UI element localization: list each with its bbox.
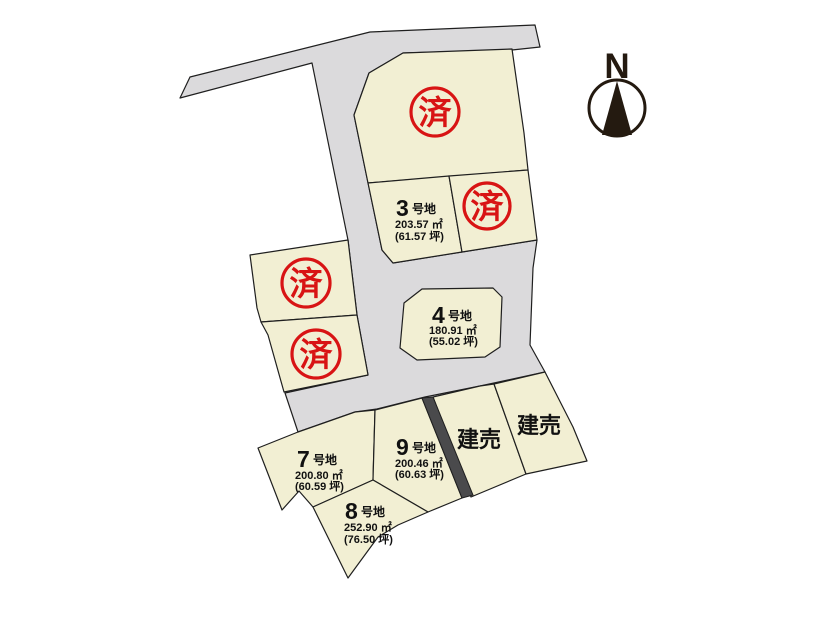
lot-4-label: 4 号地 180.91 ㎡ (55.02 坪) bbox=[429, 302, 478, 348]
lot-3-number: 3 bbox=[396, 195, 409, 221]
tateuri-2-label: 建売 bbox=[517, 413, 561, 438]
lot-8-area-m2: 252.90 ㎡ bbox=[344, 520, 392, 534]
lot-4 bbox=[400, 288, 502, 360]
compass-needle bbox=[602, 81, 632, 135]
lot-4-area-m2: 180.91 ㎡ bbox=[429, 323, 477, 337]
lot-9-area-tsubo: (60.63 坪) bbox=[395, 468, 444, 481]
sold-stamp-label: 済 bbox=[290, 265, 324, 302]
lot-3-area-m2: 203.57 ㎡ bbox=[395, 217, 443, 231]
lot-7-area-tsubo: (60.59 坪) bbox=[295, 480, 344, 493]
sold-stamp: 済 bbox=[464, 183, 510, 229]
lot-map-canvas: 済 済 済 済 3 号地 203.57 ㎡ (61.57 坪) 4 号地 180… bbox=[0, 0, 822, 618]
lot-9-area-m2: 200.46 ㎡ bbox=[395, 456, 443, 470]
north-arrow-icon: N bbox=[589, 47, 645, 136]
lot-map: 済 済 済 済 3 号地 203.57 ㎡ (61.57 坪) 4 号地 180… bbox=[0, 0, 822, 618]
lot-9-suffix: 号地 bbox=[412, 440, 436, 455]
sold-stamp-label: 済 bbox=[419, 94, 453, 131]
lot-3-suffix: 号地 bbox=[412, 201, 436, 216]
lot-8-suffix: 号地 bbox=[361, 504, 385, 519]
sold-stamp-label: 済 bbox=[300, 336, 334, 373]
lot-4-area-tsubo: (55.02 坪) bbox=[429, 335, 478, 348]
lot-4-suffix: 号地 bbox=[448, 308, 472, 323]
lot-7-number: 7 bbox=[297, 446, 310, 472]
lot-8-area-tsubo: (76.50 坪) bbox=[344, 533, 393, 546]
lot-7-label: 7 号地 200.80 ㎡ (60.59 坪) bbox=[295, 446, 344, 493]
lot-3-area-tsubo: (61.57 坪) bbox=[395, 230, 444, 243]
tateuri-1-label: 建売 bbox=[457, 427, 501, 452]
lot-8-number: 8 bbox=[345, 498, 358, 524]
lot-9-number: 9 bbox=[396, 434, 409, 460]
sold-stamp-label: 済 bbox=[471, 188, 505, 225]
lot-7-suffix: 号地 bbox=[313, 452, 337, 467]
lot-7-area-m2: 200.80 ㎡ bbox=[295, 468, 343, 482]
